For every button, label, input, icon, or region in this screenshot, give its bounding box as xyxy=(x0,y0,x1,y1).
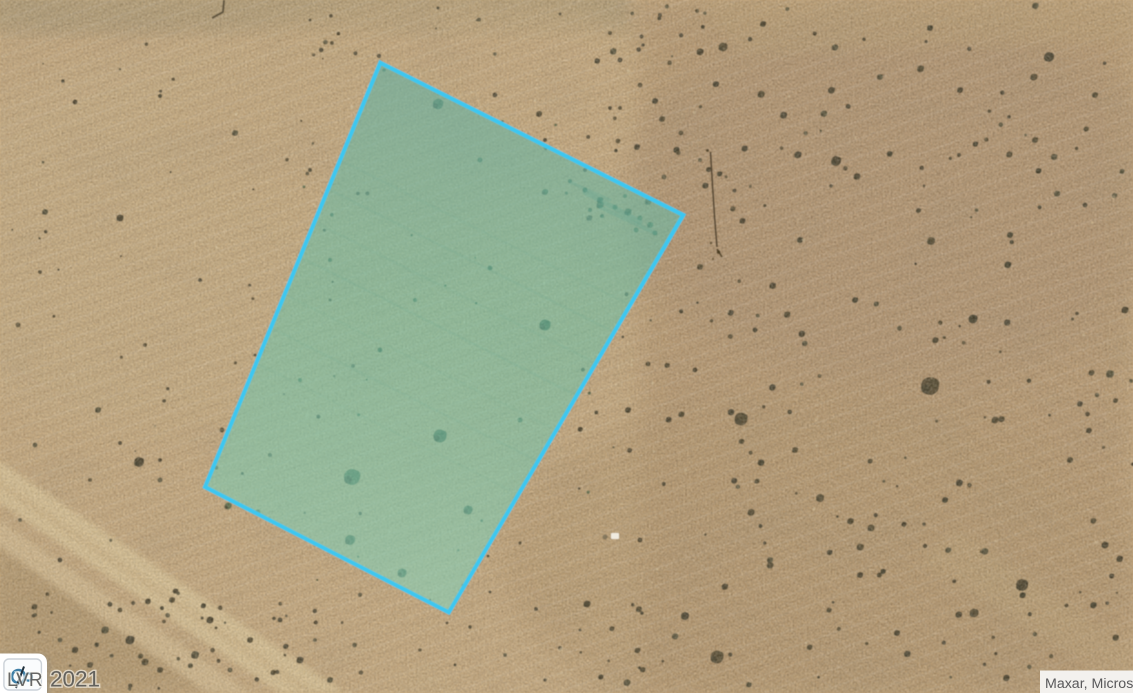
svg-text:LVR: LVR xyxy=(7,670,43,691)
svg-text:Maxar, Microso: Maxar, Microso xyxy=(1045,676,1133,692)
svg-text:2021: 2021 xyxy=(50,667,100,692)
